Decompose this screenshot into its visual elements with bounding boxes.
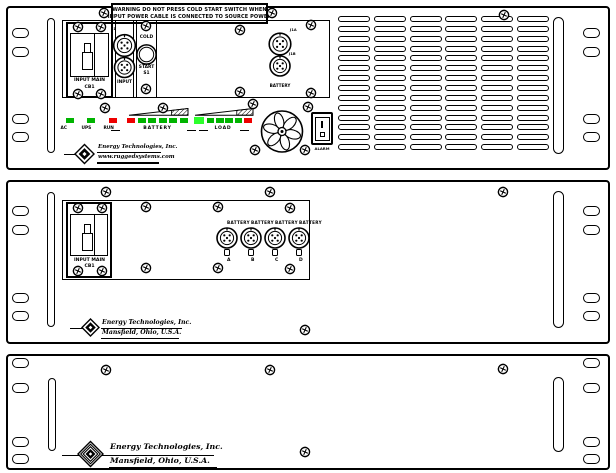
rack-mount-slot — [583, 206, 600, 216]
vent-slot — [410, 16, 442, 22]
vent-slot — [481, 105, 513, 111]
vent-slot — [374, 115, 406, 121]
load-bar-led — [216, 118, 224, 124]
rack-mount-slot — [583, 28, 600, 38]
switch-on-mark — [321, 121, 323, 128]
battery-jack-label-top: J1A — [290, 29, 297, 33]
vent-slot — [517, 105, 549, 111]
vent-slot — [338, 36, 370, 42]
rack-mount-slot — [12, 454, 29, 464]
load-bar-led — [235, 118, 243, 124]
vent-slot — [481, 55, 513, 61]
breaker-title: INPUT MAIN — [74, 79, 105, 84]
vent-slot — [374, 55, 406, 61]
vent-slot — [517, 75, 549, 81]
input-connector-module — [115, 20, 134, 98]
vent-slot — [481, 75, 513, 81]
vent-slot — [374, 85, 406, 91]
vent-slot — [517, 95, 549, 101]
rack-mount-slot — [583, 293, 600, 303]
rack-panel-bottom — [6, 354, 610, 470]
switch-off-mark — [320, 132, 326, 138]
drawing-canvas: WARNING DO NOT PRESS COLD START SWITCH W… — [0, 0, 616, 473]
logo-rule — [101, 338, 179, 339]
rack-mount-slot — [583, 358, 600, 368]
fuse-holder — [248, 249, 254, 257]
rack-mount-slot — [583, 383, 600, 393]
vent-slot — [481, 65, 513, 71]
vent-slot — [517, 55, 549, 61]
load-bar-label: LOAD — [214, 127, 231, 132]
vent-slot — [481, 16, 513, 22]
vent-slot — [517, 36, 549, 42]
vent-slot — [410, 115, 442, 121]
vent-slot — [517, 85, 549, 91]
panel-handle — [553, 377, 564, 452]
vent-slot — [410, 85, 442, 91]
rack-mount-slot — [12, 383, 29, 393]
vent-slot — [338, 16, 370, 22]
rack-mount-slot — [12, 47, 29, 57]
rack-mount-slot — [12, 114, 29, 124]
vent-slot — [374, 105, 406, 111]
vent-slot — [338, 105, 370, 111]
rack-mount-slot — [583, 132, 600, 142]
panel-handle — [47, 18, 55, 153]
vent-slot — [374, 65, 406, 71]
vent-slot — [374, 36, 406, 42]
panel-handle — [48, 378, 56, 451]
rack-mount-slot — [12, 358, 29, 368]
vent-slot — [445, 85, 477, 91]
vent-slot — [338, 65, 370, 71]
vent-slot — [517, 124, 549, 130]
vent-slot — [338, 85, 370, 91]
input-caption: INPUT — [117, 81, 132, 85]
panel-handle — [553, 17, 564, 154]
company-city-3: Mansfield, Ohio, U.S.A. — [110, 457, 210, 466]
breaker-id-2: CB1 — [84, 265, 94, 270]
led-label-run: RUN — [104, 127, 124, 133]
vent-slot — [481, 36, 513, 42]
vent-slot — [481, 144, 513, 150]
rack-mount-slot — [12, 206, 29, 216]
vent-slot — [445, 115, 477, 121]
battery-bar-led — [180, 118, 188, 124]
load-bar-led — [244, 118, 252, 124]
vent-slot — [410, 105, 442, 111]
vent-slot — [374, 144, 406, 150]
vent-slot — [410, 95, 442, 101]
rack-mount-slot — [12, 293, 29, 303]
panel-handle — [47, 192, 55, 327]
vent-slot — [481, 46, 513, 52]
vent-slot — [410, 55, 442, 61]
dash — [199, 130, 208, 131]
rack-mount-slot — [12, 132, 29, 142]
vent-slot — [481, 134, 513, 140]
vent-slot — [410, 26, 442, 32]
logo-rule — [109, 467, 217, 468]
breaker-toggle-2[interactable] — [82, 233, 93, 251]
vent-slot — [338, 115, 370, 121]
vent-slot — [445, 124, 477, 130]
company-name-3: Energy Technologies, Inc. — [110, 443, 223, 452]
vent-slot — [374, 26, 406, 32]
led-label-ac: AC — [61, 127, 81, 133]
vent-slot — [338, 26, 370, 32]
vent-slot — [338, 75, 370, 81]
vent-slot — [410, 36, 442, 42]
rack-mount-slot — [583, 47, 600, 57]
vent-slot — [517, 16, 549, 22]
rack-mount-slot — [583, 454, 600, 464]
vent-slot — [481, 26, 513, 32]
vent-slot — [410, 144, 442, 150]
cold-start-word2: START — [139, 66, 154, 70]
logo-rule — [70, 328, 84, 329]
vent-slot — [517, 144, 549, 150]
vent-slot — [410, 124, 442, 130]
battery-bar-led — [169, 118, 177, 124]
company-name: Energy Technologies, Inc. — [98, 144, 177, 150]
breaker-title-2: INPUT MAIN — [74, 259, 105, 264]
led-run — [109, 118, 117, 124]
vent-slot — [374, 75, 406, 81]
vent-slot — [445, 105, 477, 111]
battery-bar-led — [159, 118, 167, 124]
vent-slot — [410, 65, 442, 71]
vent-slot — [338, 124, 370, 130]
input-jack-label: J1 — [112, 27, 116, 31]
fuse-holder — [272, 249, 278, 257]
rack-mount-slot — [12, 28, 29, 38]
vent-slot — [517, 134, 549, 140]
led-ups — [87, 118, 95, 124]
battery-bar-led — [127, 118, 135, 124]
battery-caption: BATTERY — [270, 84, 291, 88]
vent-slot — [481, 85, 513, 91]
vent-slot — [410, 46, 442, 52]
breaker-toggle[interactable] — [82, 52, 93, 70]
alarm-label: ALARM — [315, 147, 330, 151]
breaker-divider — [94, 33, 95, 77]
vent-slot — [445, 75, 477, 81]
dash — [187, 130, 196, 131]
vent-slot — [338, 95, 370, 101]
vent-slot — [517, 26, 549, 32]
battery-bar-label: BATTERY — [143, 127, 171, 132]
vent-slot — [481, 115, 513, 121]
logo-rule — [97, 152, 161, 153]
vent-slot — [374, 134, 406, 140]
rack-mount-slot — [583, 437, 600, 447]
vent-slot — [410, 134, 442, 140]
vent-slot — [445, 55, 477, 61]
vent-slot — [374, 16, 406, 22]
vent-slot — [410, 75, 442, 81]
company-url: www.ruggedsystems.com — [98, 154, 175, 160]
company-city-2: Mansfield, Ohio, U.S.A. — [102, 330, 181, 337]
vent-slot — [338, 144, 370, 150]
vent-slot — [517, 46, 549, 52]
vent-slot — [445, 134, 477, 140]
logo-rule — [64, 154, 76, 155]
cold-start-id: S1 — [143, 72, 149, 76]
rack-mount-slot — [583, 225, 600, 235]
rack-mount-slot — [12, 311, 29, 321]
load-bar-led — [207, 118, 215, 124]
led-label-ups: UPS — [82, 127, 102, 133]
panel-handle — [553, 191, 564, 328]
vent-slot — [445, 144, 477, 150]
vent-slot — [445, 26, 477, 32]
cold-start-module — [136, 20, 157, 98]
vent-slot — [338, 55, 370, 61]
logo-rule — [97, 162, 159, 163]
vent-slot — [445, 65, 477, 71]
vent-slot — [517, 115, 549, 121]
vent-slot — [445, 46, 477, 52]
fuse-holder — [224, 249, 230, 257]
rack-mount-slot — [583, 311, 600, 321]
vent-slot — [445, 16, 477, 22]
battery-jack-label-bottom: J1B — [289, 53, 296, 57]
warning-line1: WARNING DO NOT PRESS COLD START SWITCH W… — [112, 7, 266, 14]
vent-slot — [481, 124, 513, 130]
dash — [240, 130, 249, 131]
vent-slot — [338, 134, 370, 140]
battery-bar-led — [138, 118, 146, 124]
breaker-divider-2 — [94, 214, 95, 256]
vent-slot — [338, 46, 370, 52]
vent-slot — [517, 65, 549, 71]
vent-slot — [374, 124, 406, 130]
fuse-holder — [296, 249, 302, 257]
battery-bar-led — [148, 118, 156, 124]
breaker-id: CB1 — [84, 86, 94, 91]
load-bar-led — [225, 118, 233, 124]
vent-slot — [445, 95, 477, 101]
company-name-2: Energy Technologies, Inc. — [102, 320, 191, 327]
cold-start-word1: COLD — [140, 36, 153, 40]
rack-mount-slot — [583, 114, 600, 124]
vent-slot — [481, 95, 513, 101]
vent-slot — [374, 46, 406, 52]
rack-mount-slot — [12, 225, 29, 235]
led-ac — [66, 118, 74, 124]
vent-slot — [445, 36, 477, 42]
load-bar-led — [194, 117, 204, 124]
vent-slot — [374, 95, 406, 101]
rack-mount-slot — [12, 437, 29, 447]
